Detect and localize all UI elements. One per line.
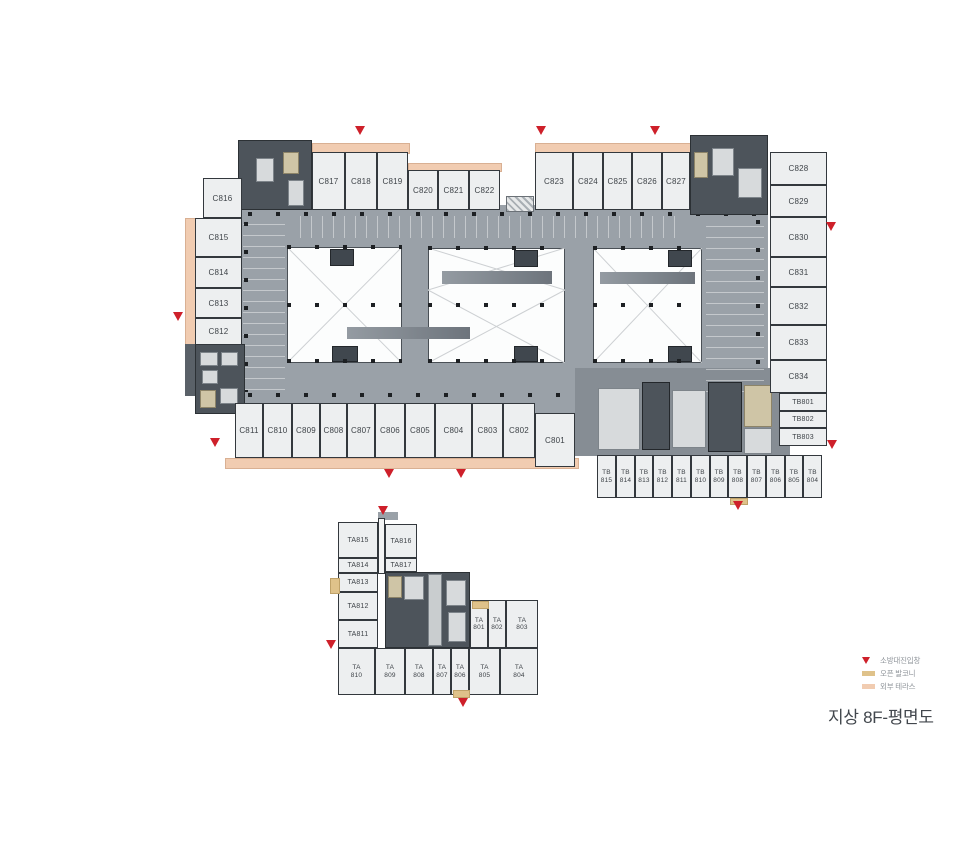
ramp	[347, 327, 470, 339]
room: TB803	[779, 428, 827, 446]
room-label: C821	[444, 186, 464, 195]
room: C825	[603, 152, 632, 210]
room-label: TB	[790, 469, 799, 477]
room: TA811	[338, 620, 378, 648]
room: C832	[770, 287, 827, 325]
room-label: C833	[789, 338, 809, 347]
room: C805	[405, 403, 435, 458]
room-label: TB	[733, 469, 742, 477]
legend: 소방대진입창 오픈 발코니 외부 테라스	[862, 654, 920, 693]
stair-block	[256, 158, 274, 182]
room-label: TA	[480, 664, 488, 672]
open-balcony-strip	[472, 601, 489, 609]
open-balcony-strip	[330, 578, 340, 594]
column-row	[593, 359, 702, 363]
elevator-block	[283, 152, 299, 174]
fire-entry-triangle-icon	[536, 126, 546, 135]
column-row	[428, 246, 565, 250]
stair-block	[200, 352, 218, 366]
room: TB804	[803, 455, 822, 498]
room-label: C831	[789, 268, 809, 277]
room-label: 802	[491, 624, 502, 632]
room: C813	[195, 288, 242, 318]
room: TA804	[500, 648, 538, 695]
room-label: C815	[209, 233, 229, 242]
stair-block	[446, 580, 466, 606]
room-label: TA814	[347, 562, 368, 569]
outer-terrace-strip	[225, 458, 579, 469]
room-label: TA	[515, 664, 523, 672]
room-label: C811	[239, 426, 258, 435]
room: TB813	[635, 455, 653, 498]
room: TA809	[375, 648, 405, 695]
room-label: C828	[789, 164, 809, 173]
room-label: C808	[324, 426, 344, 435]
room: C815	[195, 218, 242, 257]
room: C833	[770, 325, 827, 360]
room: C834	[770, 360, 827, 393]
room-label: 813	[638, 477, 649, 485]
room-label: 804	[513, 672, 524, 680]
room: C826	[632, 152, 662, 210]
room: TB802	[779, 411, 827, 428]
room: TA813	[338, 573, 378, 592]
room-label: TA	[493, 617, 501, 625]
room-label: C830	[789, 233, 809, 242]
room: C828	[770, 152, 827, 185]
room-label: TA	[475, 617, 483, 625]
core-edge	[185, 344, 195, 396]
room-label: TB	[677, 469, 686, 477]
void-stair-block	[514, 250, 538, 267]
room-label: 809	[384, 672, 395, 680]
elevator-core	[708, 382, 742, 452]
room: TA816	[385, 524, 417, 558]
stair-block	[448, 612, 466, 642]
elevator-block	[694, 152, 708, 178]
room: C810	[263, 403, 292, 458]
stair-block	[598, 388, 640, 450]
column-row	[248, 393, 573, 397]
room: C812	[195, 318, 242, 345]
void-stair-block	[330, 249, 354, 266]
room-label: C826	[637, 177, 657, 186]
room-label: 806	[454, 672, 465, 680]
room-label: TB	[808, 469, 817, 477]
louver-grid	[506, 196, 534, 212]
room: C809	[292, 403, 320, 458]
room: TB808	[728, 455, 747, 498]
room: C804	[435, 403, 472, 458]
room-label: TB	[715, 469, 724, 477]
room: C802	[503, 403, 535, 458]
room-label: 804	[807, 477, 818, 485]
room-label: TB803	[792, 434, 814, 441]
column-row	[593, 246, 702, 250]
room: C827	[662, 152, 690, 210]
room-label: C809	[296, 426, 316, 435]
room-label: 811	[676, 477, 687, 485]
room-label: TA812	[347, 603, 368, 610]
room: TB811	[672, 455, 691, 498]
room-label: C825	[608, 177, 628, 186]
room-label: C820	[413, 186, 433, 195]
stair-block	[712, 148, 734, 176]
room-label: C817	[319, 177, 339, 186]
room: C803	[472, 403, 503, 458]
fire-entry-triangle-icon	[862, 657, 876, 664]
open-balcony-strip	[453, 690, 470, 698]
room: C801	[535, 413, 575, 467]
room-label: C801	[545, 436, 565, 445]
fire-entry-triangle-icon	[326, 640, 336, 649]
room: TA805	[469, 648, 500, 695]
room-label: 814	[620, 477, 631, 485]
fire-entry-triangle-icon	[384, 469, 394, 478]
room-label: 805	[479, 672, 490, 680]
room-label: TB802	[792, 416, 814, 423]
corridor	[428, 574, 442, 646]
room: TA808	[405, 648, 433, 695]
room: C819	[377, 152, 408, 210]
fire-entry-triangle-icon	[378, 506, 388, 515]
room: TA812	[338, 592, 378, 620]
room: TB810	[691, 455, 710, 498]
room-label: TB	[621, 469, 630, 477]
room-label: TA	[415, 664, 423, 672]
ramp	[600, 272, 695, 284]
room: TB814	[616, 455, 635, 498]
room-label: C823	[544, 177, 564, 186]
stair-block	[738, 168, 762, 198]
stair-block	[288, 180, 304, 206]
room-label: C814	[209, 268, 229, 277]
void-stair-block	[668, 250, 692, 267]
room: TB801	[779, 393, 827, 411]
room: C820	[408, 170, 438, 210]
room-label: TA	[352, 664, 360, 672]
stair-block	[404, 576, 424, 600]
fire-entry-triangle-icon	[210, 438, 220, 447]
room-label: C832	[789, 302, 809, 311]
column-row	[428, 303, 565, 307]
room: TA802	[488, 600, 506, 648]
room-label: C834	[789, 372, 809, 381]
column-row	[287, 359, 402, 363]
room-label: C816	[213, 194, 233, 203]
fire-entry-triangle-icon	[458, 698, 468, 707]
room: C814	[195, 257, 242, 288]
room-label: C805	[410, 426, 430, 435]
room-label: C812	[209, 327, 229, 336]
room: C818	[345, 152, 377, 210]
room: C829	[770, 185, 827, 217]
room-label: C824	[578, 177, 598, 186]
room: TB812	[653, 455, 672, 498]
room-label: TA813	[347, 579, 368, 586]
room-label: 807	[751, 477, 762, 485]
elevator-block	[388, 576, 402, 598]
room: TB815	[597, 455, 616, 498]
fire-entry-triangle-icon	[456, 469, 466, 478]
room: C811	[235, 403, 263, 458]
column-row	[428, 359, 565, 363]
room: C807	[347, 403, 375, 458]
room-label: 808	[413, 672, 424, 680]
fire-entry-triangle-icon	[827, 440, 837, 449]
plan-title: 지상 8F-평면도	[828, 703, 934, 728]
room-label: C804	[444, 426, 464, 435]
stair-block	[744, 428, 772, 454]
fire-entry-triangle-icon	[826, 222, 836, 231]
room-label: 815	[601, 477, 612, 485]
room: TB806	[766, 455, 785, 498]
corridor	[378, 518, 385, 574]
room-label: 810	[695, 477, 706, 485]
legend-item-open-balcony: 오픈 발코니	[862, 667, 920, 680]
room-label: TA817	[390, 562, 411, 569]
legend-item-fire-entry: 소방대진입창	[862, 654, 920, 667]
room-label: TA	[456, 664, 464, 672]
room: TB807	[747, 455, 766, 498]
room: C808	[320, 403, 347, 458]
parking-stalls	[243, 222, 285, 390]
room-label: 803	[516, 624, 527, 632]
column-row	[287, 245, 402, 249]
room-label: TB	[771, 469, 780, 477]
room-label: 806	[770, 477, 781, 485]
room-label: TA	[518, 617, 526, 625]
column-row	[593, 303, 702, 307]
room: TA803	[506, 600, 538, 648]
room-label: C807	[351, 426, 371, 435]
room-label: TB	[696, 469, 705, 477]
room: TA807	[433, 648, 451, 695]
room-label: 801	[473, 624, 484, 632]
room-label: 812	[657, 477, 668, 485]
stair-block	[202, 370, 218, 384]
room-label: TB	[640, 469, 649, 477]
fire-entry-triangle-icon	[173, 312, 183, 321]
room: C831	[770, 257, 827, 287]
room-label: C802	[509, 426, 529, 435]
room: TB805	[785, 455, 803, 498]
floor-plan: C817 C818 C819 C820 C821 C822 C823 C824 …	[0, 0, 980, 853]
room-label: TB	[602, 469, 611, 477]
terrace-swatch-icon	[862, 684, 876, 689]
column-row	[287, 303, 402, 307]
room-label: C819	[383, 177, 403, 186]
room: C830	[770, 217, 827, 257]
ramp	[442, 271, 552, 284]
room-label: C822	[475, 186, 495, 195]
room-label: C806	[380, 426, 400, 435]
room-label: C829	[789, 197, 809, 206]
room-label: TA	[438, 664, 446, 672]
room-label: TB	[752, 469, 761, 477]
room-label: C827	[666, 177, 686, 186]
room: TA815	[338, 522, 378, 558]
column-row	[248, 212, 760, 216]
room-label: TB801	[792, 399, 814, 406]
room-label: 805	[788, 477, 799, 485]
parking-stalls	[300, 216, 680, 238]
legend-item-outer-terrace: 외부 테라스	[862, 680, 920, 693]
restroom-block	[744, 385, 772, 427]
balcony-swatch-icon	[862, 671, 876, 676]
stair-block	[220, 388, 238, 404]
fire-entry-triangle-icon	[733, 501, 743, 510]
column-row	[756, 220, 760, 392]
room-label: 807	[436, 672, 447, 680]
room: C823	[535, 152, 573, 210]
room-label: C810	[268, 426, 288, 435]
room-label: 810	[351, 672, 362, 680]
legend-label: 외부 테라스	[880, 681, 915, 692]
room: C816	[203, 178, 242, 218]
room: TB809	[710, 455, 728, 498]
elevator-block	[200, 390, 216, 408]
room-label: TA	[386, 664, 394, 672]
room-label: TB	[658, 469, 667, 477]
room: TA817	[385, 558, 417, 572]
room: C824	[573, 152, 603, 210]
room-label: TA811	[348, 631, 369, 638]
room-label: 808	[732, 477, 743, 485]
fire-entry-triangle-icon	[355, 126, 365, 135]
stair-block	[221, 352, 238, 366]
room-label: C813	[209, 299, 229, 308]
room-label: 809	[713, 477, 724, 485]
room-label: C803	[478, 426, 498, 435]
legend-label: 오픈 발코니	[880, 668, 915, 679]
elevator-core	[642, 382, 670, 450]
stair-block	[672, 390, 706, 448]
legend-label: 소방대진입창	[880, 655, 920, 666]
room-label: TA815	[347, 537, 368, 544]
room-label: TA816	[390, 538, 411, 545]
room: TA814	[338, 558, 378, 573]
room: TA806	[451, 648, 469, 695]
room: TA810	[338, 648, 375, 695]
room: C806	[375, 403, 405, 458]
room-label: C818	[351, 177, 371, 186]
fire-entry-triangle-icon	[650, 126, 660, 135]
room: C817	[312, 152, 345, 210]
room: C821	[438, 170, 469, 210]
room: C822	[469, 170, 500, 210]
